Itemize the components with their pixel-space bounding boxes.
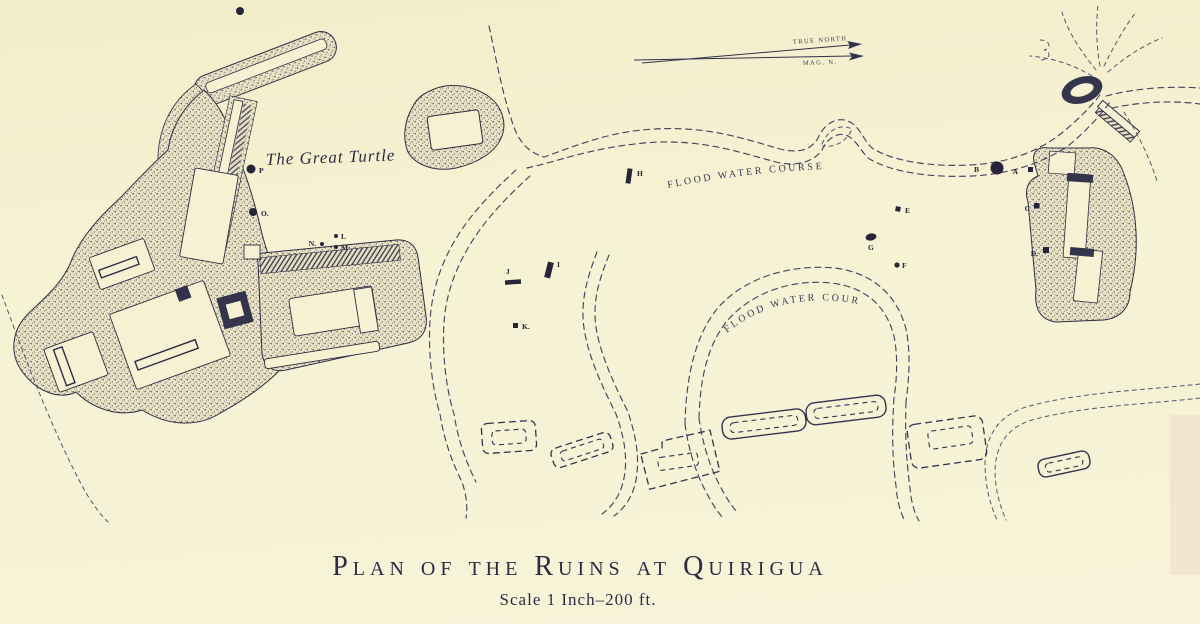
monument-l: L [334,232,346,241]
horseshoe-south-2 [906,402,919,521]
monument-b-label: B [974,165,979,174]
plaza-mound-2 [549,431,614,469]
monument-i: I [544,260,560,278]
monument-n-label: N. [309,239,316,248]
true-north-label: TRUE NORTH [793,35,848,46]
title-block: Plan of the Ruins at Quirigua Scale 1 In… [332,551,828,609]
centre-stream-2 [595,255,638,516]
monument-p: P [247,165,265,176]
mound-terrace [492,429,527,445]
plaza-mound-5 [805,394,887,426]
monument-e-marker [895,206,901,212]
map-scale: Scale 1 Inch–200 ft. [500,590,657,609]
mound-terrace [927,426,973,450]
monument-a: A [1013,167,1033,176]
monument-a-marker [1028,167,1033,172]
mound-outline [481,420,537,454]
se-stream-2 [985,384,1200,520]
branch-west-bank [429,170,516,518]
horseshoe-outer [685,267,909,424]
acropolis-complex [14,27,427,423]
monument-k: K. [513,322,530,331]
monument-h: H [625,168,643,184]
horseshoe-west-2 [685,424,723,518]
great-turtle-label: The Great Turtle [265,145,395,169]
monument-k-label: K. [522,322,530,331]
monument-c-label: C [1025,204,1030,213]
ravine-line [1097,4,1100,66]
pyramid-summit [427,110,483,151]
centre-stream-1 [583,252,626,514]
southwest-branch-stream [429,170,530,518]
monument-f-label: F [902,261,907,270]
ravine-squiggle [1040,40,1049,60]
monument-e: E [895,206,910,215]
plaza-mound-1 [481,420,537,454]
mound-outline [549,431,614,469]
monument-f: F [894,261,907,270]
monument-j-label: J [506,267,510,276]
junction-platform [244,245,260,259]
magnetic-north-label: MAG. N. [803,59,838,67]
course-east-2 [1112,102,1200,108]
plaza-mound-4 [721,408,807,440]
paper-stain [1170,415,1200,575]
ravine-line [1104,12,1136,66]
ring-mound [1058,71,1106,109]
monument-j: J [505,267,521,285]
monument-p-label: P [259,166,264,175]
monument-d-marker [1043,247,1049,253]
monument-n-marker [320,242,324,246]
long-mound [190,27,341,110]
monument-h-marker [625,168,632,184]
monument-g-label: G [868,243,874,252]
ravine-line [1062,12,1096,70]
temple-chamber [225,300,245,320]
monument-o-marker [249,208,257,216]
mound-terrace [657,452,698,470]
se-stream-1 [995,398,1200,520]
monument-m-label: M [341,243,348,252]
course-east-1 [1106,87,1200,96]
plaza-mound-7 [1037,450,1092,478]
monument-e-label: E [905,206,910,215]
monument-l-marker [334,234,338,238]
monument-i-marker [544,262,554,279]
mound-outline [721,408,807,440]
mound-terrace [730,415,799,433]
monument-i-label: I [557,260,560,269]
mound-outline [805,394,887,426]
branch-east-bank [443,176,530,482]
course-north-bank [489,26,1102,165]
quirigua-plan: FLOOD WATER COURSE FLOOD WATER COURSE [0,0,1200,624]
north-arrow: TRUE NORTH MAG. N. [634,35,864,67]
plaza-mounds [481,394,1091,490]
east-group-low-platform [1073,249,1102,303]
monument-o-label: O. [261,209,269,218]
course-island [822,127,852,146]
monument-a-label: A [1013,167,1019,176]
monument-m-marker [334,245,338,249]
monument-h-label: H [637,169,643,178]
monument-n: N. [309,239,324,248]
monument-p-marker [247,165,256,174]
stray-dot [236,7,244,15]
plaza-mound-6 [906,415,987,469]
pyramid-mound [405,85,504,169]
mound-terrace [814,401,879,419]
map-title: Plan of the Ruins at Quirigua [332,551,828,582]
monument-j-marker [505,279,521,285]
mound-outline [1037,450,1092,478]
flood-course-upper-label: FLOOD WATER COURSE [666,161,824,191]
monument-l-label: L [341,232,346,241]
centre-stream [583,252,638,516]
ravine-line [1030,56,1092,76]
horseshoe-south-1 [893,398,905,521]
monument-k-marker [513,323,518,328]
monument-b-marker [991,162,1004,175]
southeast-stream [985,384,1200,520]
map-canvas: FLOOD WATER COURSE FLOOD WATER COURSE [0,0,1200,624]
east-group-mound [1026,148,1136,322]
mound-terrace [560,438,605,461]
monument-d-label: D. [1031,249,1038,258]
monument-g-marker [865,233,877,242]
monument-c-marker [1034,203,1040,209]
monument-b: B [974,162,1004,175]
flood-course-upper-text: FLOOD WATER COURSE [666,161,824,191]
mound-outline [906,415,987,469]
monument-f-marker [894,262,899,267]
monument-g: G [865,233,877,252]
